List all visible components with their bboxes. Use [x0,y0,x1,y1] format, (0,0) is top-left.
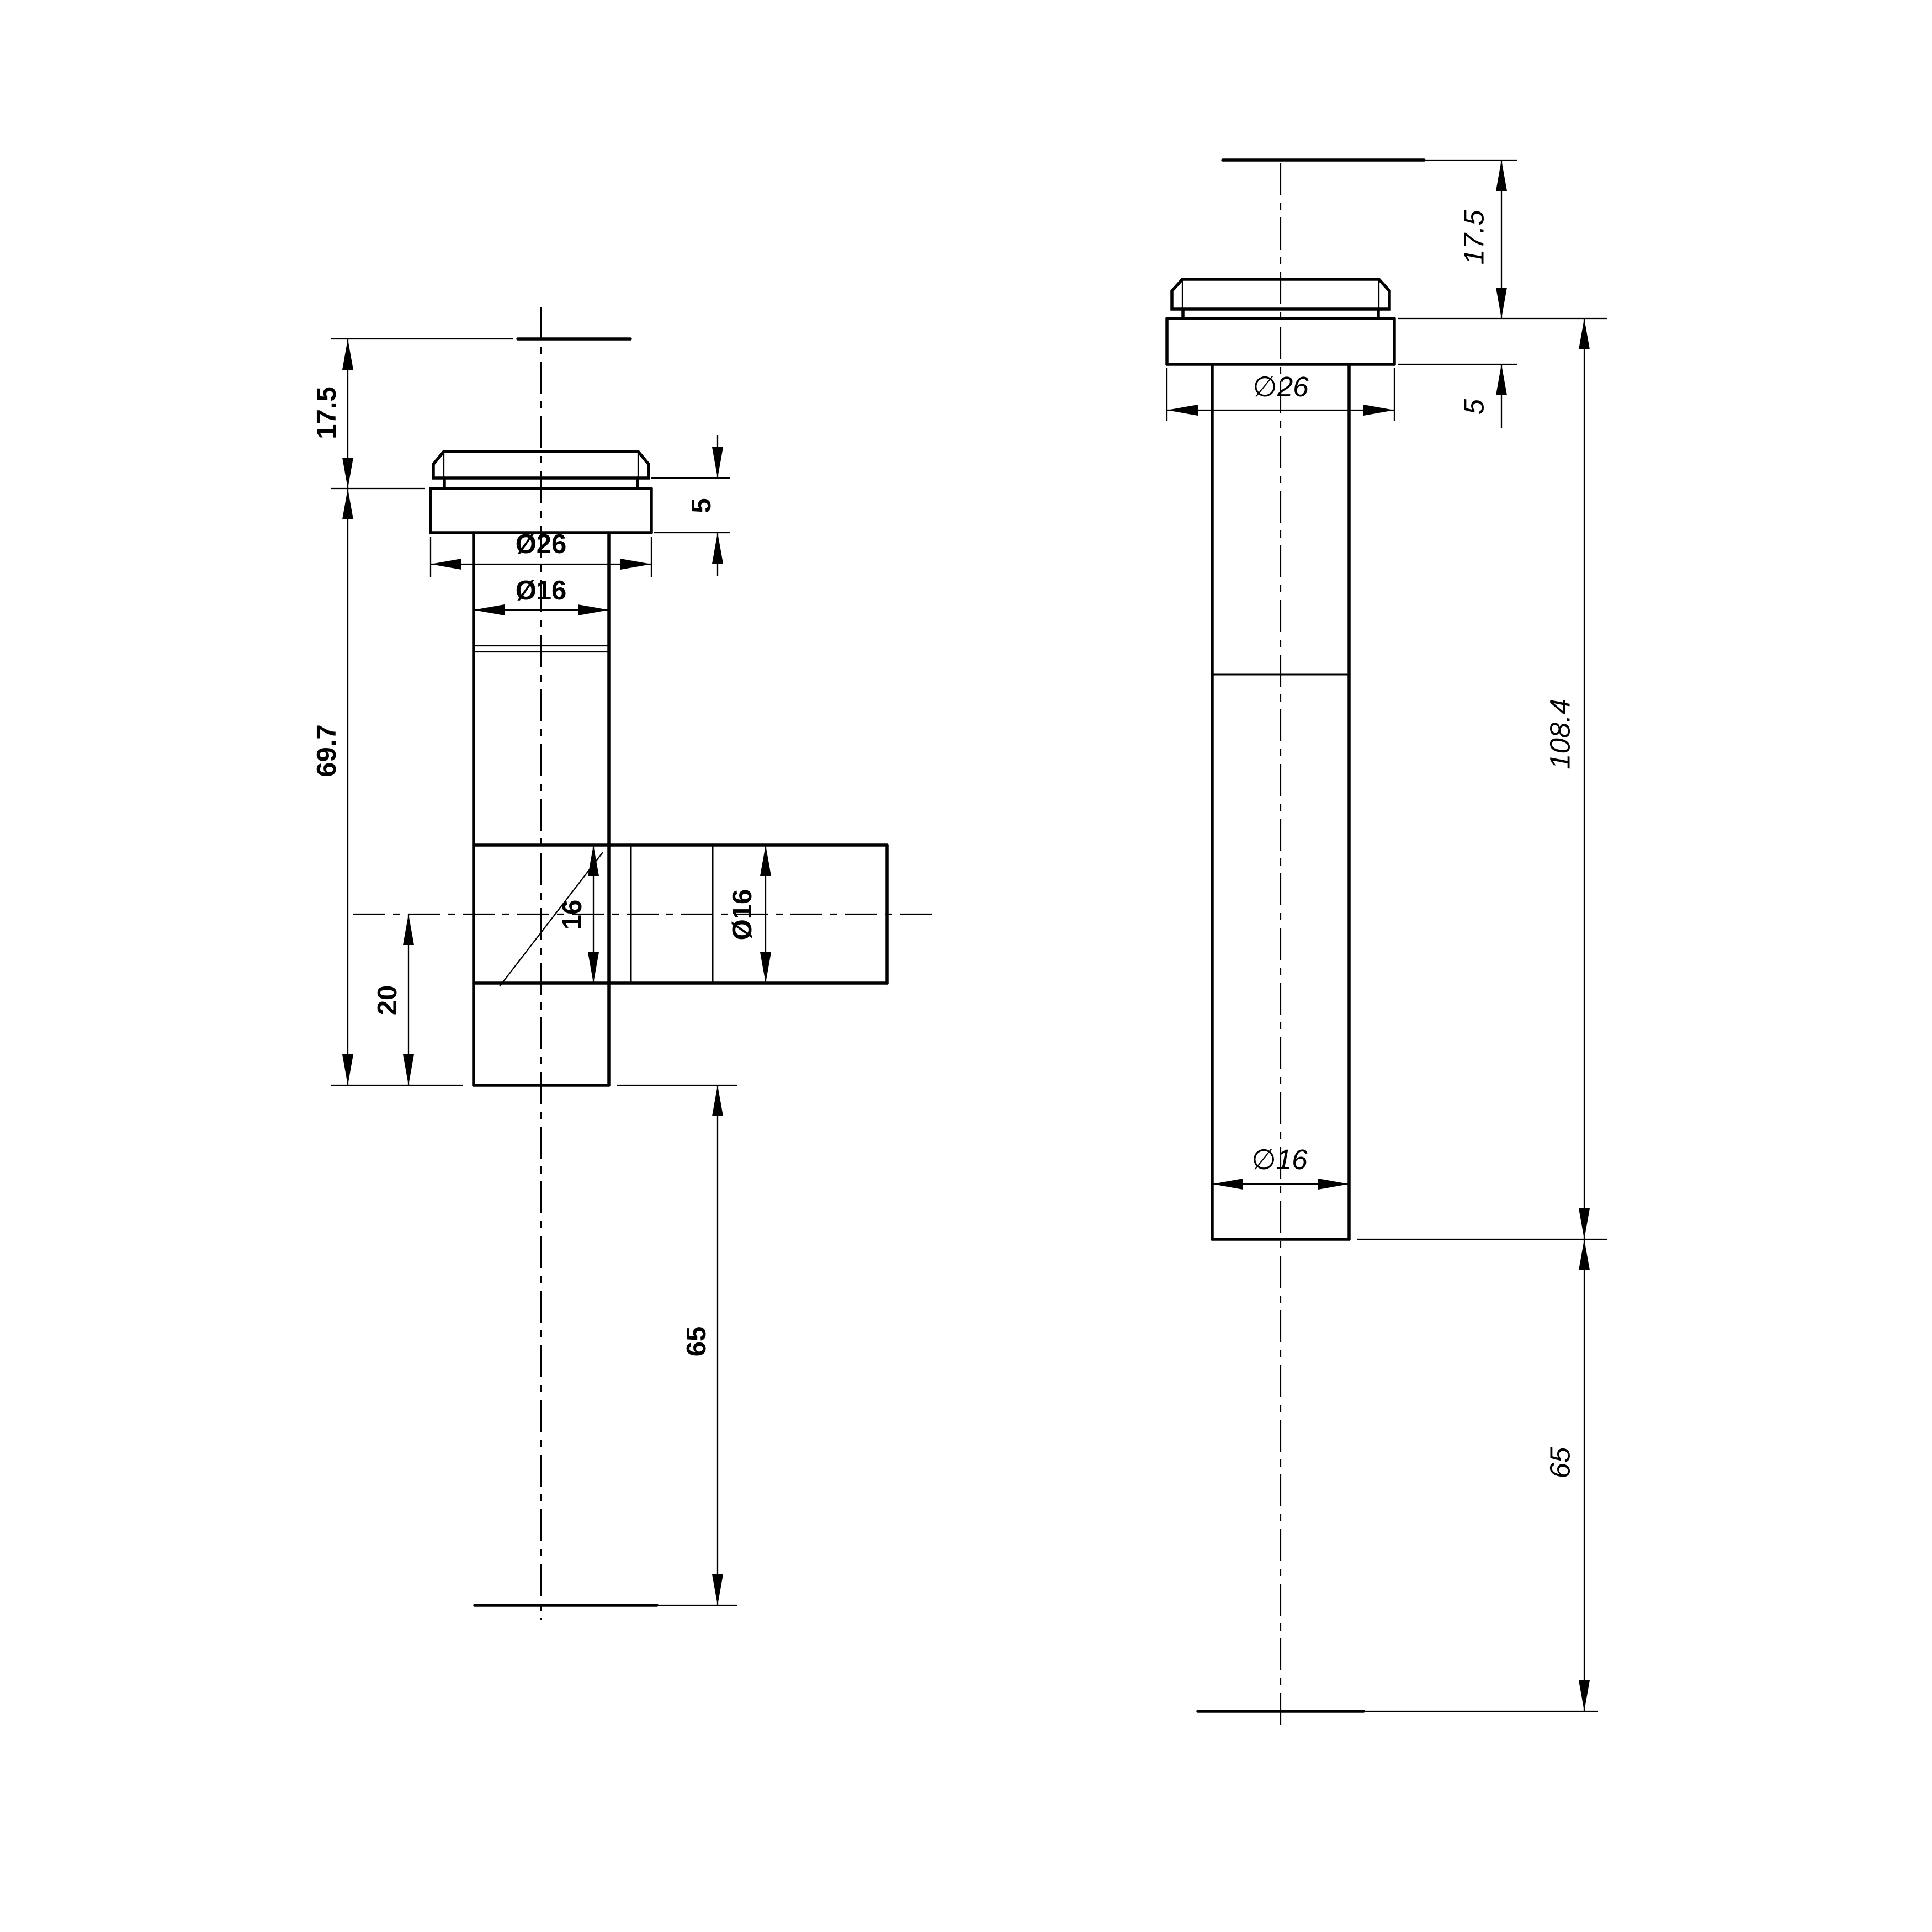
right-dim-label-108-4: 108.4 [1544,699,1576,769]
left-dim-label-5: 5 [687,498,716,513]
right-dim-label-dia26: ∅26 [1252,371,1309,402]
left-dim-label-65: 65 [682,1326,712,1357]
drawing-sheet: 17.5 69.7 20 5 Ø26 Ø16 16 Ø16 65 [0,0,1932,1932]
left-dim-label-branch-dia16: Ø16 [728,889,757,941]
right-dim-label-5: 5 [1458,399,1490,415]
left-dim-label-17-5: 17.5 [312,386,342,439]
right-dim-label-17-5: 17.5 [1458,210,1490,265]
technical-drawing-canvas: 17.5 69.7 20 5 Ø26 Ø16 16 Ø16 65 [0,0,1932,1932]
sheet-background [0,0,1932,1932]
left-dim-label-dia16: Ø16 [516,576,567,606]
left-dim-label-dia26: Ø26 [516,529,567,559]
left-dim-label-20: 20 [373,985,402,1016]
right-dim-label-65: 65 [1544,1447,1576,1478]
right-dim-label-dia16: ∅16 [1251,1144,1308,1175]
left-dim-label-16: 16 [558,900,587,930]
left-dim-label-69-7: 69.7 [312,724,342,777]
